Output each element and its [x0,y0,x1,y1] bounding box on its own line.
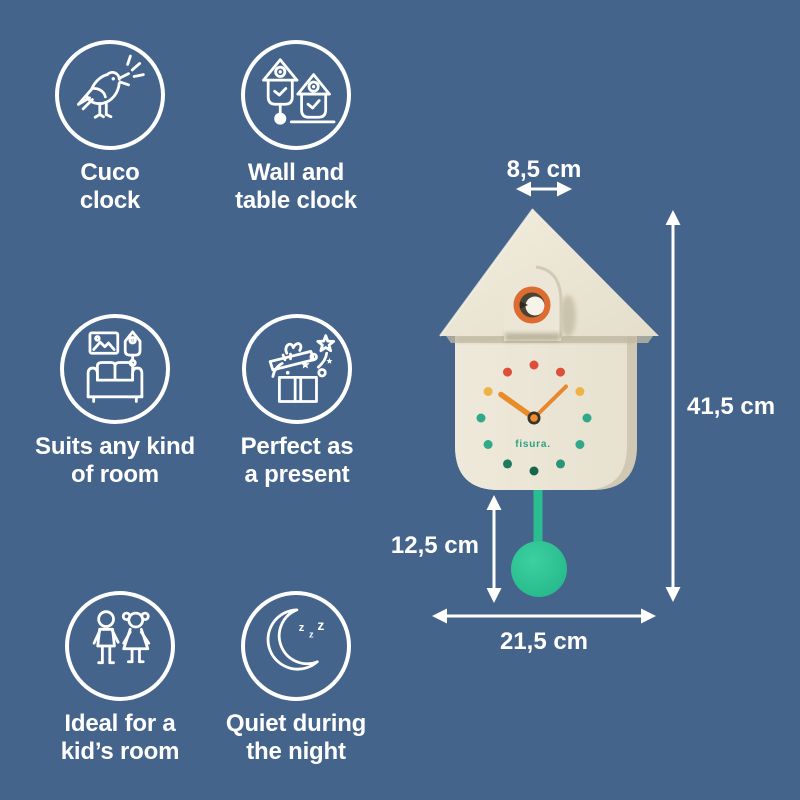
pendulum [511,486,567,597]
clock-figure: fisura. 8,5 cm 41,5 cm 12,5 cm [0,0,800,800]
dimension-label: 8,5 cm [507,156,582,183]
product-infographic: Cuco clock [0,0,800,800]
dimension-label: 41,5 cm [687,393,775,420]
brand-logo: fisura. [515,439,551,450]
dimension-pendulum-length: 12,5 cm [391,495,502,603]
dimension-label: 12,5 cm [391,532,479,559]
cuckoo-bird [526,297,545,316]
pendulum-bob [511,541,567,597]
dimension-label: 21,5 cm [500,628,588,655]
dimension-total-height: 41,5 cm [666,210,776,602]
dimension-top-depth: 8,5 cm [507,156,582,197]
dimension-total-width: 21,5 cm [432,609,656,656]
